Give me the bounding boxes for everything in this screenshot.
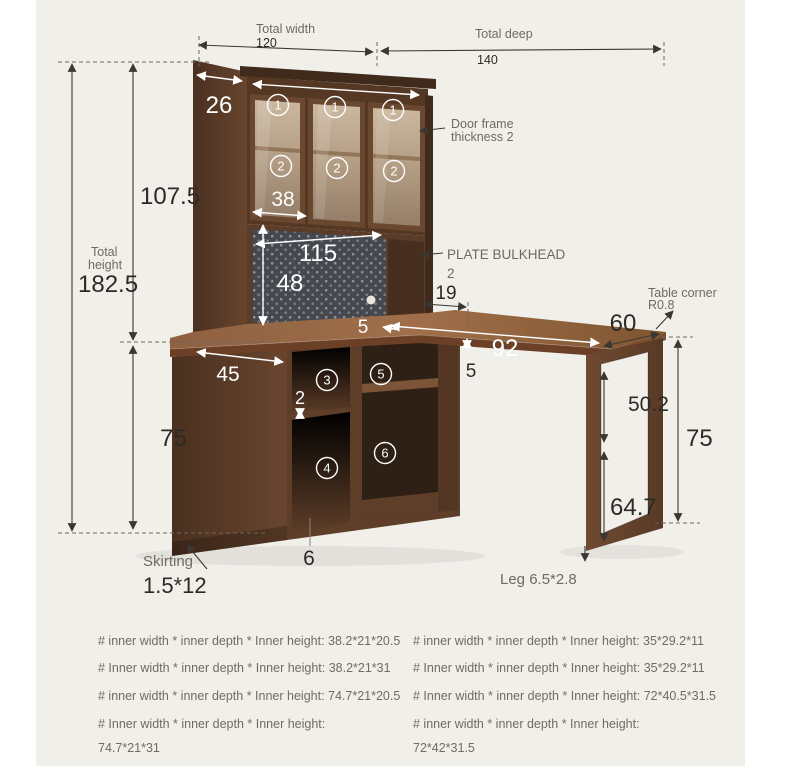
leg-inner-height-value: 50.2 (628, 393, 669, 416)
total-height-label-2: height (88, 258, 123, 272)
lower-height-value: 75 (160, 425, 187, 452)
side-depth-value: 26 (206, 92, 233, 119)
part-number: 5 (377, 367, 384, 382)
skirting-label: Skirting (143, 553, 193, 570)
spec-left-3: # inner width * inner depth * Inner heig… (98, 689, 400, 703)
door-frame-note-2: thickness 2 (451, 130, 514, 144)
pegboard-width-value: 115 (299, 240, 337, 267)
leader-table-corner (656, 311, 673, 329)
total-height-value: 182.5 (78, 271, 138, 298)
pegboard-accessory-dot (367, 296, 376, 305)
total-deep-label: Total deep (475, 27, 533, 41)
desk-overhang-value: 5 (358, 317, 369, 338)
back-offset-value: 19 (435, 283, 456, 304)
furniture-illustration (135, 60, 684, 566)
desk-thickness-value: 5 (466, 361, 477, 382)
dim-total-width (199, 45, 373, 52)
part-number: 1 (331, 100, 338, 115)
lower-cabinet (172, 333, 460, 556)
spec-left-1: # inner width * inner depth * Inner heig… (98, 634, 400, 648)
total-width-value: 120 (256, 36, 277, 50)
part-number: 6 (381, 446, 388, 461)
table-corner-note-2: R0.8 (648, 298, 674, 312)
part-number: 3 (323, 373, 330, 388)
spec-left-4: # Inner width * inner depth * Inner heig… (98, 717, 325, 731)
total-width-label: Total width (256, 22, 315, 36)
plate-bulkhead-note-1: PLATE BULKHEAD (447, 247, 566, 262)
part-number: 2 (390, 164, 397, 179)
spec-right-4: # inner width * inner depth * Inner heig… (413, 717, 640, 731)
diagram-svg: 1 1 1 2 2 2 3 4 5 6 Total width 120 Tota… (0, 0, 790, 776)
spec-text-block: # inner width * inner depth * Inner heig… (98, 634, 716, 755)
plate-bulkhead-note-2: 2 (447, 266, 455, 281)
skirting-value: 1.5*12 (143, 573, 207, 598)
desk-length-value: 92 (492, 335, 519, 362)
open-shelf-interior (362, 335, 438, 520)
product-dimension-diagram: 1 1 1 2 2 2 3 4 5 6 Total width 120 Tota… (0, 0, 790, 776)
door-width-value: 38 (271, 188, 294, 211)
total-height-label-1: Total (91, 245, 117, 259)
desk-depth-value: 60 (610, 310, 637, 337)
part-number: 2 (277, 159, 284, 174)
part-number: 4 (323, 461, 330, 476)
drawer-gap-value: 2 (295, 388, 305, 408)
leg-lower-height-value: 64.7 (610, 494, 657, 521)
spec-right-1: # inner width * inner depth * Inner heig… (413, 634, 704, 648)
base-height-value: 6 (303, 547, 315, 570)
floor-shadow-leg (560, 545, 684, 559)
total-deep-value: 140 (477, 53, 498, 67)
dim-total-deep (381, 49, 661, 51)
spec-right-4-value: 72*42*31.5 (413, 741, 475, 755)
cabinet-depth-value: 45 (216, 363, 239, 386)
leg-size-label: Leg 6.5*2.8 (500, 571, 577, 588)
desk-height-value: 75 (686, 425, 713, 452)
door-frame-note-1: Door frame (451, 117, 514, 131)
hutch-right-edge (425, 95, 433, 320)
part-number: 1 (274, 98, 281, 113)
part-number: 2 (333, 161, 340, 176)
spec-right-3: # Inner width * inner depth * Inner heig… (413, 689, 716, 703)
part-number: 1 (389, 103, 396, 118)
pegboard-height-value: 48 (277, 270, 304, 297)
spec-left-4-value: 74.7*21*31 (98, 741, 160, 755)
spec-left-2: # Inner width * inner depth * Inner heig… (98, 661, 391, 675)
upper-height-value: 107.5 (140, 183, 200, 210)
shelf-right-panel (438, 333, 458, 512)
cabinet-door-front (292, 412, 350, 532)
spec-right-2: # Inner width * inner depth * Inner heig… (413, 661, 705, 675)
